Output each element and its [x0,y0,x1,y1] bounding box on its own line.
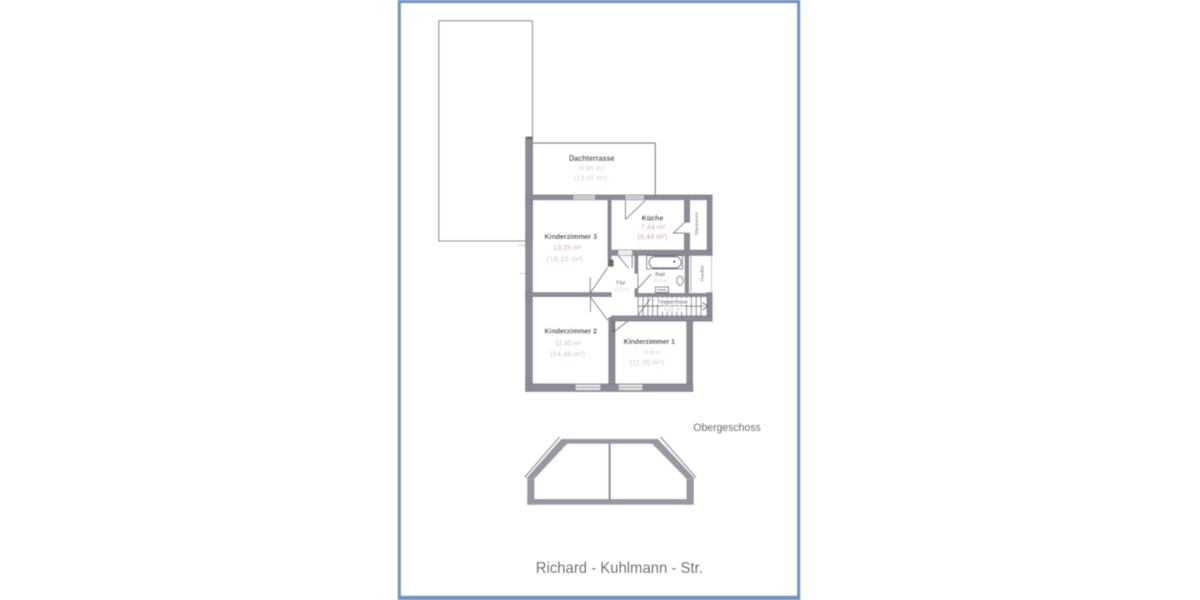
svg-text:(14,48 m²): (14,48 m²) [550,352,585,359]
svg-text:Stauraum: Stauraum [694,212,699,235]
svg-text:9,46 m²: 9,46 m² [579,166,606,173]
svg-text:Flur: Flur [617,280,626,286]
svg-text:Kinderzimmer 3: Kinderzimmer 3 [545,232,598,241]
svg-text:2,39 m²: 2,39 m² [615,287,630,293]
svg-text:(9,44 m²): (9,44 m²) [638,234,668,241]
svg-text:(13,82 m²): (13,82 m²) [574,176,607,183]
svg-text:Dachterrasse: Dachterrasse [569,154,615,163]
svg-text:Obergeschoss: Obergeschoss [693,422,761,434]
svg-text:Kinderzimmer 2: Kinderzimmer 2 [545,327,598,336]
svg-text:Bad: Bad [655,272,664,278]
svg-text:Richard - Kuhlmann - Str.: Richard - Kuhlmann - Str. [536,560,703,577]
svg-text:(11,05 m²): (11,05 m²) [630,360,664,367]
svg-text:4,61 m²: 4,61 m² [664,307,683,313]
svg-text:9,36 m²: 9,36 m² [645,350,661,356]
svg-text:12,45 m²: 12,45 m² [555,341,582,348]
svg-text:Treppenhaus: Treppenhaus [657,300,688,306]
svg-text:Kinderzimmer 1: Kinderzimmer 1 [624,337,675,346]
svg-text:Gaube: Gaube [700,265,705,282]
svg-text:13,05 m²: 13,05 m² [554,245,582,252]
svg-text:Küche: Küche [642,214,664,223]
svg-text:(16,15 m²): (16,15 m²) [547,257,584,264]
svg-text:4,05 m²: 4,05 m² [653,278,668,284]
svg-text:7,44 m²: 7,44 m² [641,224,666,231]
